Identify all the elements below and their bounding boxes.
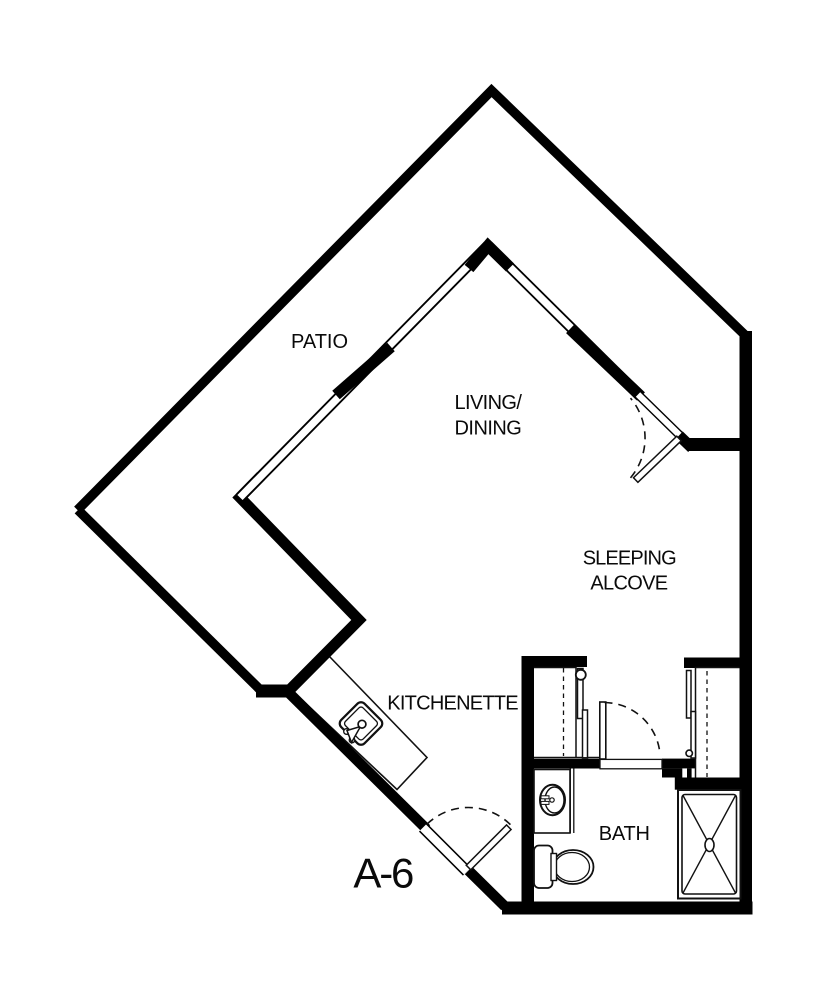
svg-text:PATIO: PATIO bbox=[291, 331, 348, 353]
svg-text:A-6: A-6 bbox=[353, 850, 413, 897]
svg-text:SLEEPING: SLEEPING bbox=[583, 548, 676, 570]
svg-text:KITCHENETTE: KITCHENETTE bbox=[387, 693, 518, 715]
svg-text:ALCOVE: ALCOVE bbox=[590, 573, 667, 595]
svg-text:LIVING/: LIVING/ bbox=[455, 392, 523, 414]
svg-text:DINING: DINING bbox=[455, 417, 522, 439]
svg-text:BATH: BATH bbox=[599, 823, 650, 845]
